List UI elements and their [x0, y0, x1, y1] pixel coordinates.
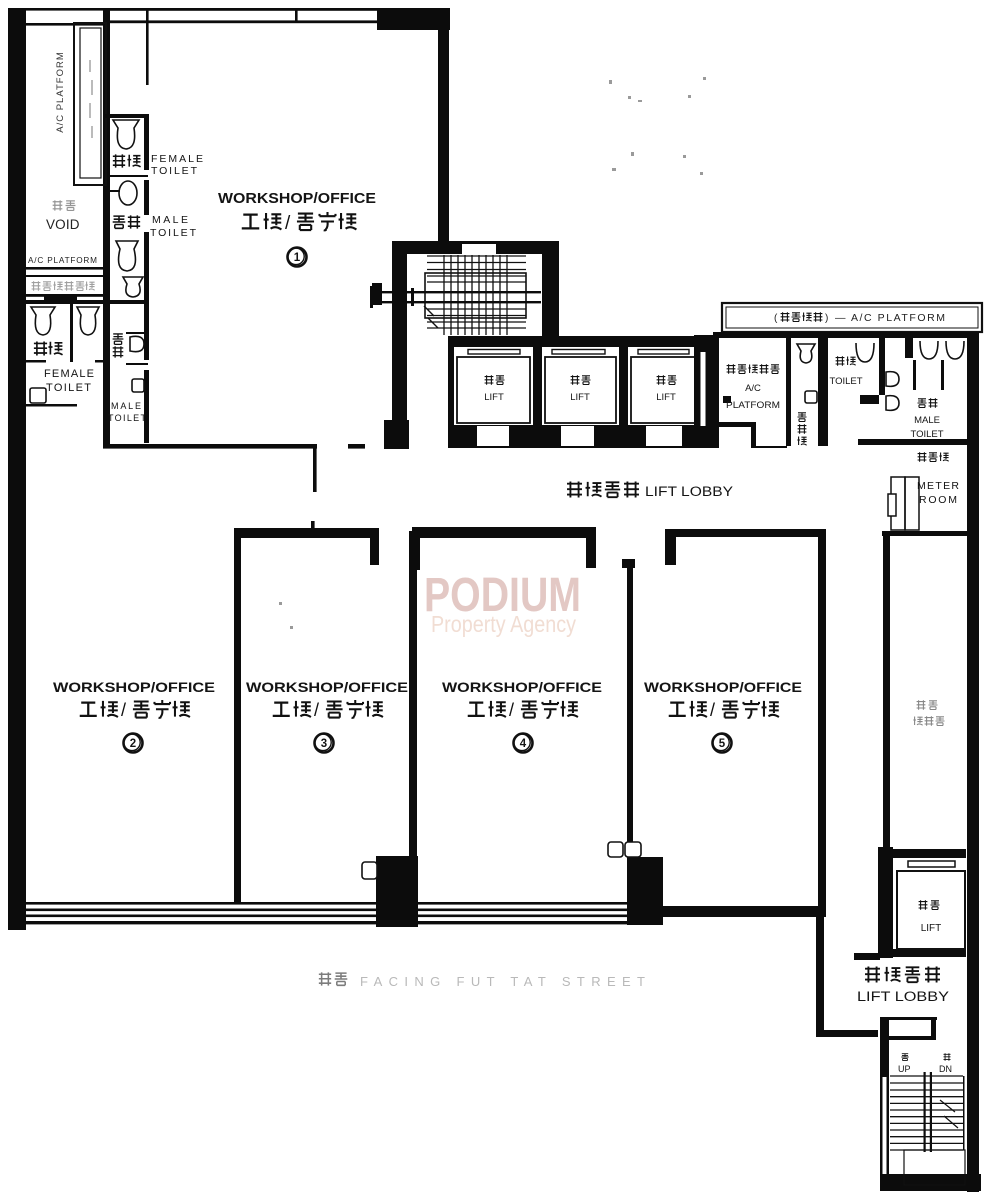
svg-text:PLATFORM: PLATFORM	[726, 400, 780, 411]
svg-text:WORKSHOP/OFFICE: WORKSHOP/OFFICE	[644, 679, 802, 695]
svg-text:ROOM: ROOM	[919, 494, 957, 506]
svg-text:FEMALE: FEMALE	[44, 368, 94, 380]
svg-text:METER: METER	[917, 480, 959, 492]
svg-text:A/C PLATFORM: A/C PLATFORM	[55, 51, 66, 133]
svg-text:FEMALE: FEMALE	[151, 153, 203, 165]
svg-text:4: 4	[520, 738, 527, 750]
svg-text:/: /	[121, 700, 126, 720]
svg-text:A/C: A/C	[745, 383, 761, 394]
svg-text:3: 3	[321, 738, 327, 750]
svg-text:TOILET: TOILET	[910, 429, 943, 440]
svg-text:LIFT: LIFT	[656, 392, 676, 403]
svg-text:TOILET: TOILET	[829, 376, 862, 387]
svg-text:MALE: MALE	[914, 415, 940, 426]
svg-text:): )	[825, 313, 828, 324]
svg-text:MALE: MALE	[152, 214, 188, 226]
svg-text:/: /	[509, 700, 514, 720]
svg-text:LIFT LOBBY: LIFT LOBBY	[857, 989, 949, 1004]
svg-text:WORKSHOP/OFFICE: WORKSHOP/OFFICE	[246, 679, 408, 695]
svg-text:WORKSHOP/OFFICE: WORKSHOP/OFFICE	[218, 191, 376, 207]
svg-text:Property Agency: Property Agency	[431, 611, 576, 637]
svg-text:TOILET: TOILET	[108, 413, 147, 423]
svg-text:LIFT LOBBY: LIFT LOBBY	[645, 484, 733, 499]
svg-text:/: /	[710, 700, 715, 720]
svg-text:A/C PLATFORM: A/C PLATFORM	[28, 256, 97, 265]
svg-text:UP: UP	[898, 1064, 911, 1074]
svg-text:1: 1	[294, 252, 301, 264]
svg-text:/: /	[314, 700, 319, 720]
svg-text:DN: DN	[939, 1064, 952, 1074]
svg-text:LIFT: LIFT	[484, 392, 504, 403]
svg-text:— A/C PLATFORM: — A/C PLATFORM	[835, 312, 945, 324]
svg-text:LIFT: LIFT	[921, 923, 942, 934]
svg-text:/: /	[285, 213, 291, 234]
svg-text:5: 5	[719, 738, 726, 750]
svg-text:2: 2	[130, 738, 136, 750]
svg-text:LIFT: LIFT	[570, 392, 590, 403]
svg-text:VOID: VOID	[46, 217, 80, 232]
svg-text:MALE: MALE	[111, 401, 141, 411]
svg-text:WORKSHOP/OFFICE: WORKSHOP/OFFICE	[442, 679, 602, 695]
svg-text:WORKSHOP/OFFICE: WORKSHOP/OFFICE	[53, 679, 215, 695]
